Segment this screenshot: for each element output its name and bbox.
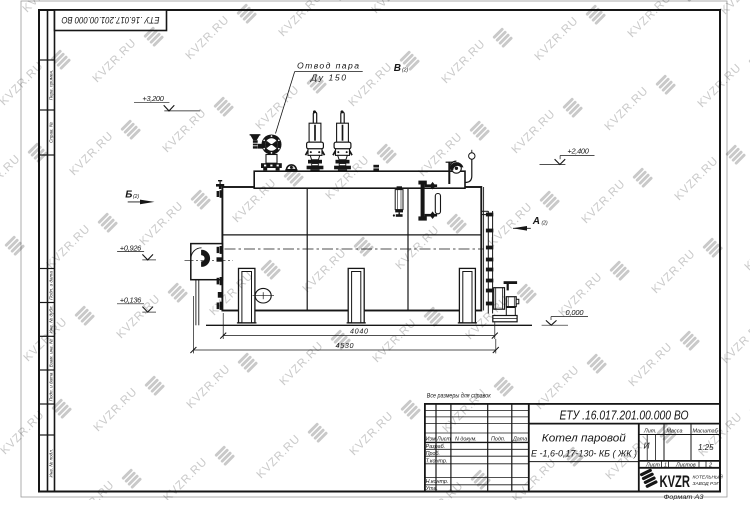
svg-text:Дата: Дата — [512, 437, 527, 443]
svg-text:+0,136: +0,136 — [120, 296, 142, 305]
svg-text:+0,926: +0,926 — [120, 244, 142, 253]
svg-text:Лист: Лист — [436, 437, 451, 443]
svg-text:Подп.: Подп. — [491, 437, 505, 443]
svg-text:Б: Б — [125, 189, 132, 200]
svg-text:Н.контр.: Н.контр. — [426, 479, 449, 485]
svg-text:2: 2 — [708, 462, 712, 468]
svg-text:Подп. и дата: Подп. и дата — [48, 372, 53, 401]
svg-text:В: В — [394, 63, 401, 74]
svg-text:Проб.: Проб. — [426, 451, 440, 457]
svg-text:А: А — [532, 216, 540, 227]
svg-text:Лит.: Лит. — [643, 429, 657, 435]
svg-text:Формат А3: Формат А3 — [664, 494, 704, 500]
svg-text:Разраб.: Разраб. — [426, 444, 446, 450]
svg-text:(2): (2) — [542, 221, 548, 227]
svg-text:Листов: Листов — [675, 462, 696, 468]
svg-text:Инв. № подл.: Инв. № подл. — [48, 449, 53, 478]
svg-text:ЗАВОД РЭП: ЗАВОД РЭП — [693, 481, 721, 487]
svg-text:Изм: Изм — [426, 437, 436, 443]
svg-text:(2): (2) — [133, 194, 139, 200]
svg-text:+3,200: +3,200 — [142, 94, 164, 103]
svg-text:Подп. и дата: Подп. и дата — [48, 271, 53, 300]
svg-text:Отвод пара: Отвод пара — [297, 61, 359, 71]
svg-text:Т.контр.: Т.контр. — [426, 458, 448, 464]
svg-text:Утв.: Утв. — [425, 486, 438, 492]
svg-text:KVZR: KVZR — [660, 473, 691, 491]
svg-text:N докум.: N докум. — [455, 437, 477, 443]
svg-text:4040: 4040 — [350, 326, 368, 335]
svg-text:Перв. примен.: Перв. примен. — [48, 70, 53, 101]
svg-text:(2): (2) — [402, 68, 408, 74]
svg-text:Справ. №: Справ. № — [48, 122, 53, 143]
svg-text:ЕТУ .16.017.201.00.000 ВО: ЕТУ .16.017.201.00.000 ВО — [61, 15, 160, 26]
svg-text:+2,400: +2,400 — [567, 146, 589, 155]
svg-text:Лист: Лист — [645, 462, 660, 468]
svg-text:ЕТУ .16.017.201.00.000 ВО: ЕТУ .16.017.201.00.000 ВО — [560, 408, 689, 423]
svg-text:Котел паровой: Котел паровой — [542, 433, 626, 445]
svg-text:1: 1 — [664, 462, 667, 468]
